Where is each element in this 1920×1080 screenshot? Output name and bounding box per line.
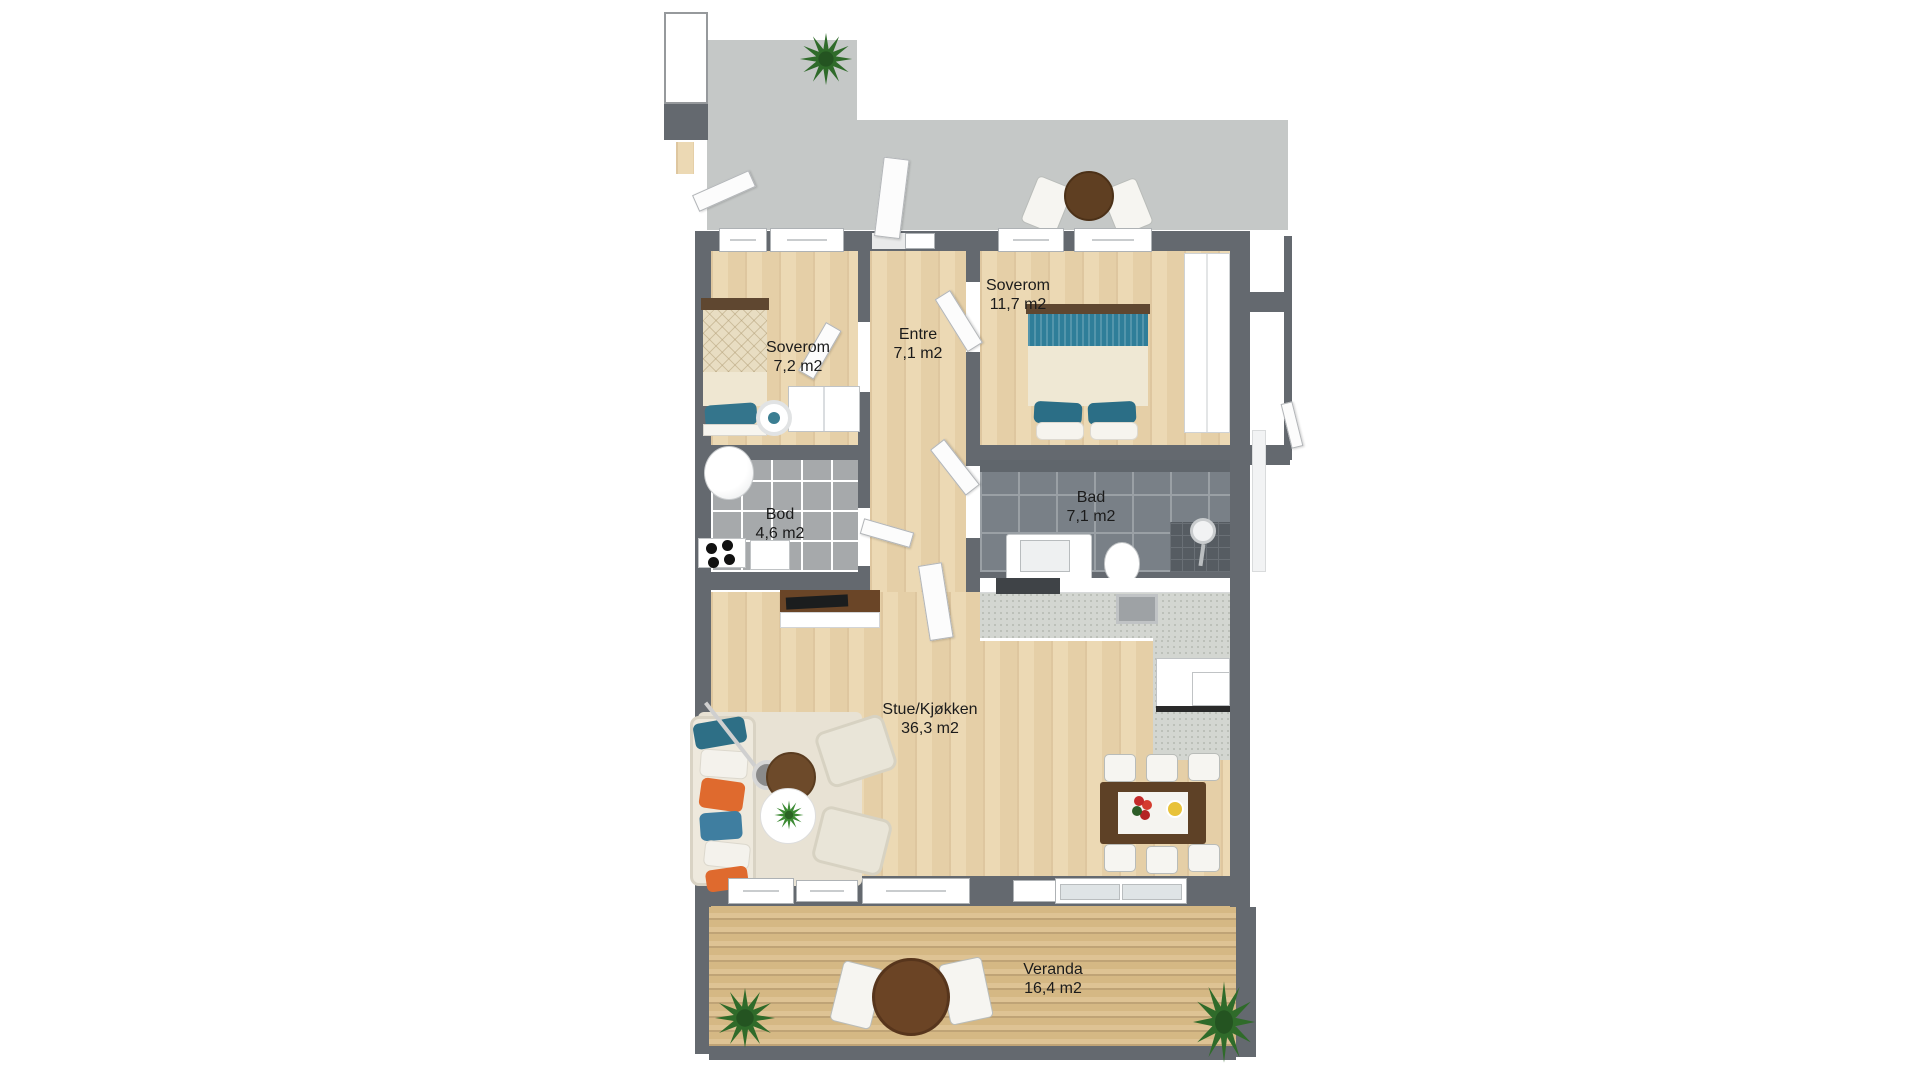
window	[796, 880, 858, 902]
room-label-bod: Bod 4,6 m2	[756, 505, 805, 543]
sliding-door-pane	[1060, 884, 1120, 900]
water-heater	[704, 446, 754, 500]
room-name: Soverom	[986, 276, 1050, 295]
room-label-veranda: Veranda 16,4 m2	[1023, 960, 1083, 998]
floorplan-canvas: Soverom 7,2 m2 Entre 7,1 m2 Soverom 11,7…	[0, 0, 1920, 1080]
bathroom-wall-shadow	[980, 460, 1230, 472]
bed-sheet	[703, 372, 767, 406]
shower-head	[1190, 518, 1216, 544]
room-name: Stue/Kjøkken	[882, 700, 977, 719]
stair-shaft	[664, 12, 708, 104]
kitchen-island-trim	[1156, 706, 1230, 712]
neighbor-floor-sliver	[676, 142, 694, 174]
table-plant-icon	[774, 800, 804, 830]
room-area: 7,1 m2	[1067, 507, 1116, 526]
room-area: 7,1 m2	[894, 344, 943, 363]
room-label-bad: Bad 7,1 m2	[1067, 488, 1116, 526]
room-area: 7,2 m2	[766, 357, 830, 376]
entrance-sidelight	[905, 233, 935, 249]
cooktop-burners	[706, 543, 717, 554]
potted-plant-icon	[714, 986, 776, 1050]
kitchen-cooktop	[996, 578, 1060, 594]
room-area: 36,3 m2	[882, 719, 977, 738]
window	[719, 228, 767, 252]
room-label-soverom-large: Soverom 11,7 m2	[986, 276, 1050, 314]
veranda-edge	[709, 1046, 1236, 1060]
dining-chair	[1146, 754, 1178, 782]
dining-chair	[1188, 844, 1220, 872]
room-name: Soverom	[766, 338, 830, 357]
sliding-door	[1055, 878, 1187, 904]
potted-plant-icon	[1192, 980, 1256, 1064]
bed-pillow-white	[1036, 422, 1084, 440]
window	[1013, 880, 1057, 902]
window	[998, 228, 1064, 252]
potted-plant-icon	[799, 30, 853, 88]
dining-chair	[1104, 844, 1136, 872]
window	[1074, 228, 1152, 252]
fruit-bowl	[1166, 800, 1184, 818]
dining-chair	[1188, 753, 1220, 781]
room-area: 4,6 m2	[756, 524, 805, 543]
kitchen-counter	[980, 592, 1230, 641]
kitchen-island-box	[1192, 672, 1230, 706]
tv-bench-front	[780, 612, 880, 628]
wall-veranda-left	[695, 907, 709, 1054]
balcony-table	[1064, 171, 1114, 221]
dresser-divider	[823, 387, 825, 431]
flower-decor	[1134, 796, 1144, 806]
room-area: 16,4 m2	[1023, 979, 1083, 998]
window	[770, 228, 844, 252]
room-name: Entre	[894, 325, 943, 344]
window	[862, 878, 970, 904]
room-label-stue: Stue/Kjøkken 36,3 m2	[882, 700, 977, 738]
cooktop-unit	[698, 538, 746, 568]
veranda-table	[872, 958, 950, 1036]
bed-pillow-white	[1090, 422, 1138, 440]
room-label-soverom-small: Soverom 7,2 m2	[766, 338, 830, 376]
sliding-door-pane	[1122, 884, 1182, 900]
room-name: Bod	[756, 505, 805, 524]
appliance-box	[750, 540, 790, 570]
room-area: 11,7 m2	[986, 295, 1050, 314]
wall-segment	[664, 104, 708, 140]
stool-center	[768, 412, 780, 424]
wall-bod-bottom	[695, 572, 870, 590]
bed-quilt	[703, 310, 767, 372]
wall-inner	[858, 251, 870, 322]
sofa-pillow-orange	[698, 777, 746, 813]
sofa-pillow-blue	[699, 811, 743, 842]
wall-right	[1230, 231, 1250, 907]
neighbor-niche	[1252, 430, 1266, 572]
room-label-entre: Entre 7,1 m2	[894, 325, 943, 363]
balcony-door	[728, 878, 794, 904]
wardrobe-divider	[1206, 254, 1208, 432]
bed-blanket-teal	[1028, 314, 1148, 346]
bed-duvet	[1028, 346, 1148, 406]
sink-basin	[1020, 540, 1070, 572]
dining-chair	[1146, 846, 1178, 874]
dining-chair	[1104, 754, 1136, 782]
kitchen-sink	[1116, 594, 1158, 624]
room-name: Veranda	[1023, 960, 1083, 979]
bed-headboard	[701, 298, 769, 310]
wall-mid	[966, 445, 1250, 460]
wall-inner	[966, 251, 980, 282]
room-name: Bad	[1067, 488, 1116, 507]
